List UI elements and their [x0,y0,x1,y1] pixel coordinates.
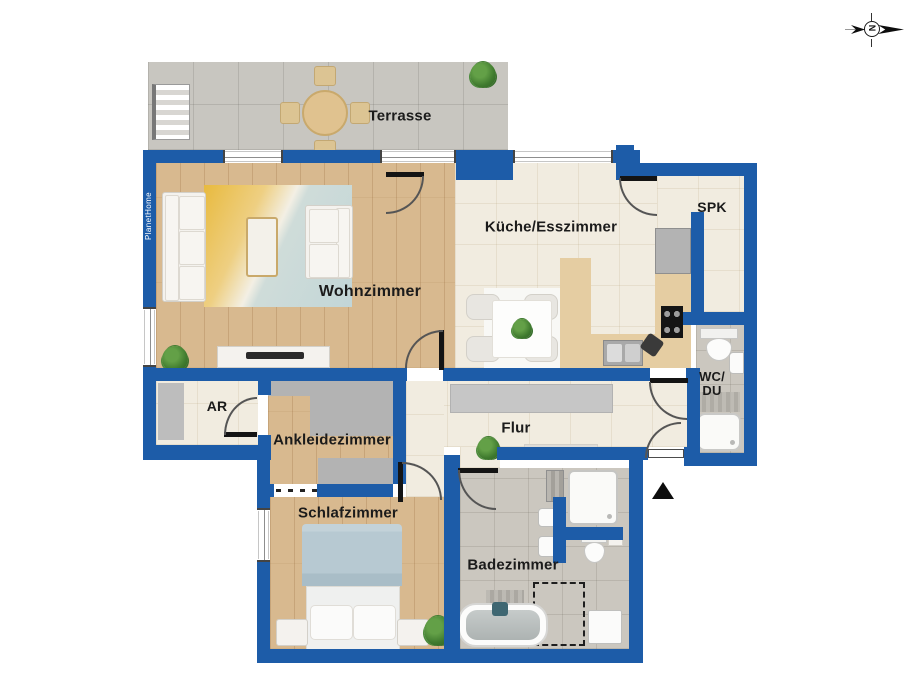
wall [283,150,380,163]
wall [143,368,407,381]
pillow-icon [353,605,396,640]
plant-icon [512,319,532,339]
loveseat-icon [305,205,353,279]
washing-machine-icon [588,610,622,644]
sink-icon [603,340,643,366]
wall [257,562,270,662]
room-label-schlafzimmer: Schlafzimmer [298,505,398,522]
wall [691,212,704,312]
window [257,508,270,562]
floor-plan: Terrasse Wohnzimmer Küche/Esszimmer SPK … [0,0,907,680]
room-label-kueche-esszimmer: Küche/Esszimmer [485,219,617,236]
nightstand-icon [276,619,308,646]
wall [497,447,648,460]
kitchen-counter-upper [560,258,591,334]
wall [684,447,700,466]
wall [444,455,460,650]
window [223,150,283,163]
wall [443,368,650,381]
wardrobe-icon [310,396,393,436]
wall [258,381,271,395]
wall [687,381,700,453]
wall [686,368,700,381]
balcony-door-opening [380,150,456,163]
wc-du-line1: WC/ [699,370,725,384]
room-label-terrasse: Terrasse [368,108,431,125]
wall [257,649,643,663]
shower-tray-icon [697,413,741,451]
terrace-table-icon [302,90,348,136]
room-label-ar: AR [207,398,228,414]
wall [560,527,623,540]
compass-icon: N [845,12,905,48]
pillow-icon [310,605,353,640]
hall-wardrobe-icon [450,384,613,413]
room-label-spk: SPK [697,199,726,215]
wall [257,460,270,508]
sliding-door-opening [274,484,317,497]
window [513,150,613,163]
room-label-wc-du: WC/ DU [699,370,725,398]
room-label-badezimmer: Badezimmer [467,557,558,574]
bed-icon [302,520,402,649]
wall [143,445,271,460]
planethome-watermark: PlanetHome [144,168,155,240]
washbasin-icon [729,352,744,374]
bathtub-icon [458,603,548,647]
wc-du-line2: DU [699,384,725,398]
wall [629,460,643,663]
wall [258,435,271,445]
sofa-icon [162,192,206,302]
terrace-chair-icon [314,66,336,86]
dresser-icon [318,458,393,486]
fridge-icon [655,228,691,274]
terrace-chair-icon [350,102,370,124]
entrance-arrow-icon [652,482,674,499]
wall [317,484,393,497]
plant-icon [470,62,496,88]
shelf-icon [158,383,184,440]
terrace-chair-icon [280,102,300,124]
cooktop-icon [661,306,683,338]
wall [683,312,757,325]
compass-north-letter: N [864,21,880,37]
wall [628,163,757,176]
room-label-flur: Flur [501,420,530,437]
awning-icon [152,84,190,140]
shower-icon [568,470,618,525]
wardrobe-icon [268,381,393,396]
window [143,307,156,367]
room-label-wohnzimmer: Wohnzimmer [319,283,421,301]
room-label-ankleidezimmer: Ankleidezimmer [273,432,391,449]
tv-icon [246,352,304,359]
coffee-table-icon [246,217,278,277]
wall [456,150,513,180]
